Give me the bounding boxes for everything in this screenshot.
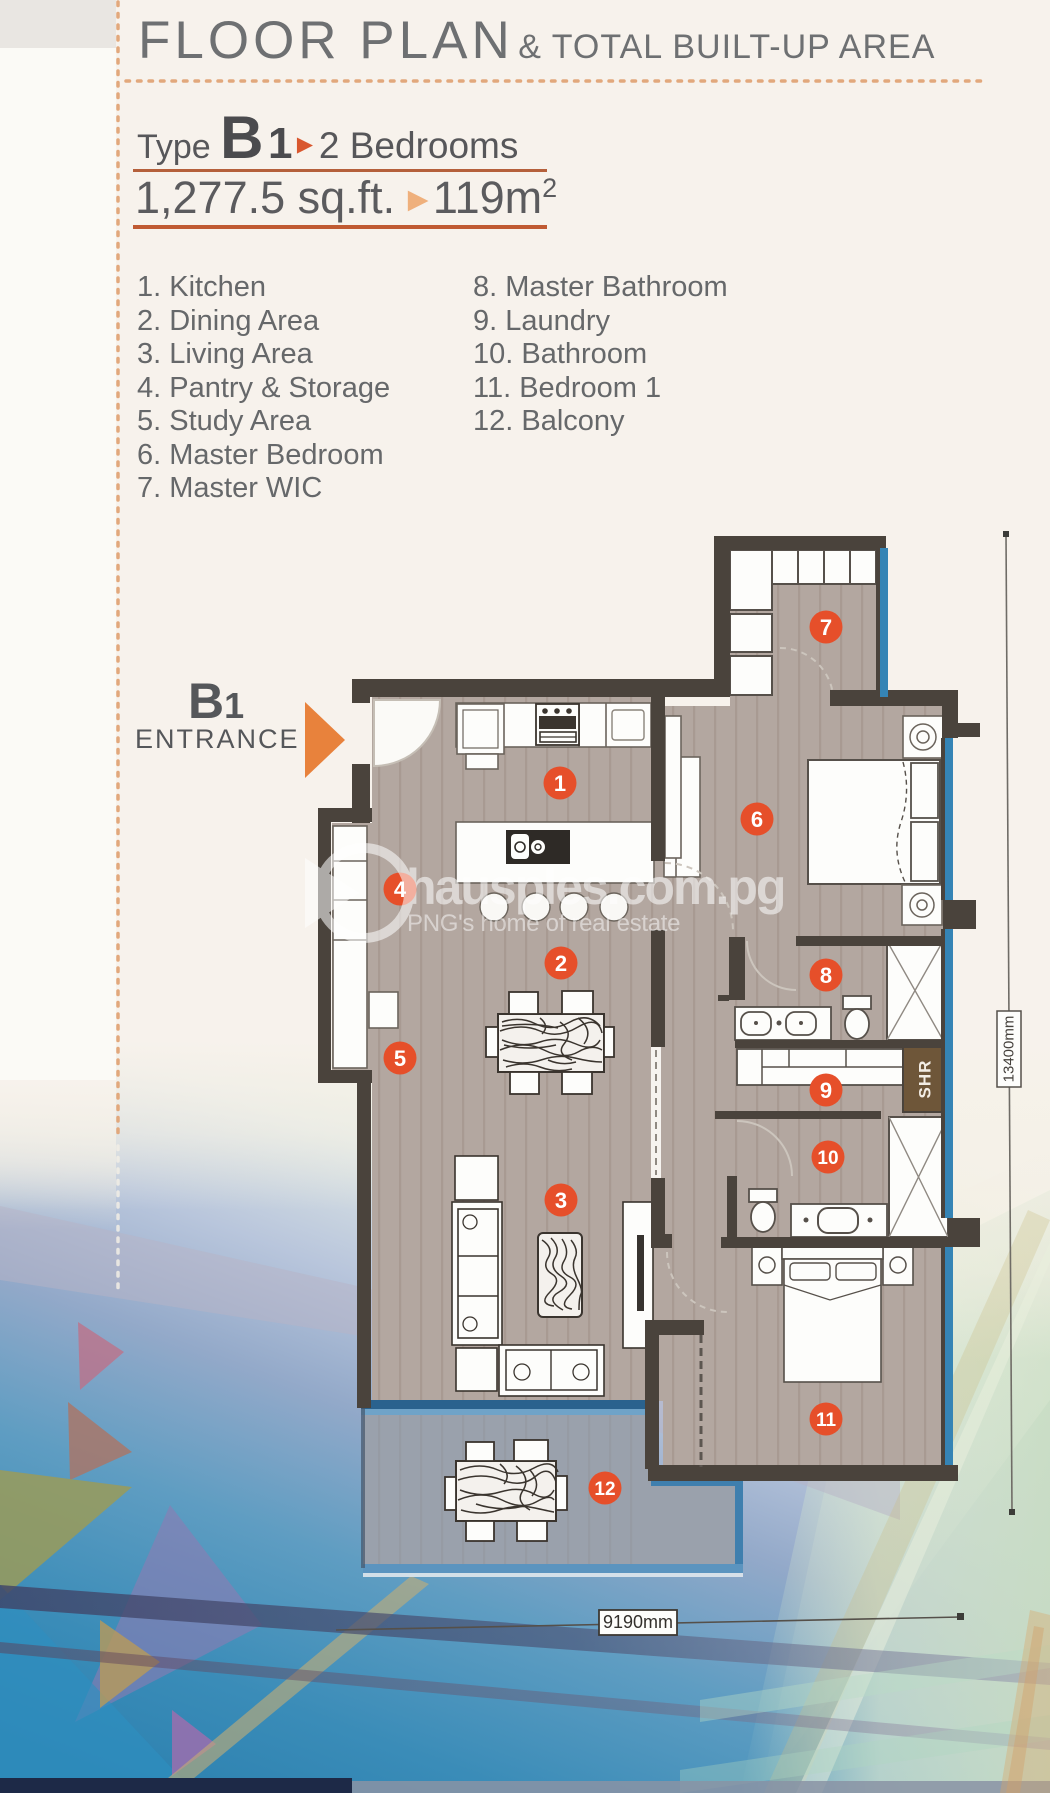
svg-text:12: 12 bbox=[594, 1479, 615, 1500]
svg-text:11: 11 bbox=[816, 1410, 837, 1431]
svg-text:9190mm: 9190mm bbox=[603, 1612, 673, 1632]
svg-text:PNG's home of real estate: PNG's home of real estate bbox=[407, 910, 680, 937]
svg-text:hausples.com.pg: hausples.com.pg bbox=[406, 859, 784, 915]
